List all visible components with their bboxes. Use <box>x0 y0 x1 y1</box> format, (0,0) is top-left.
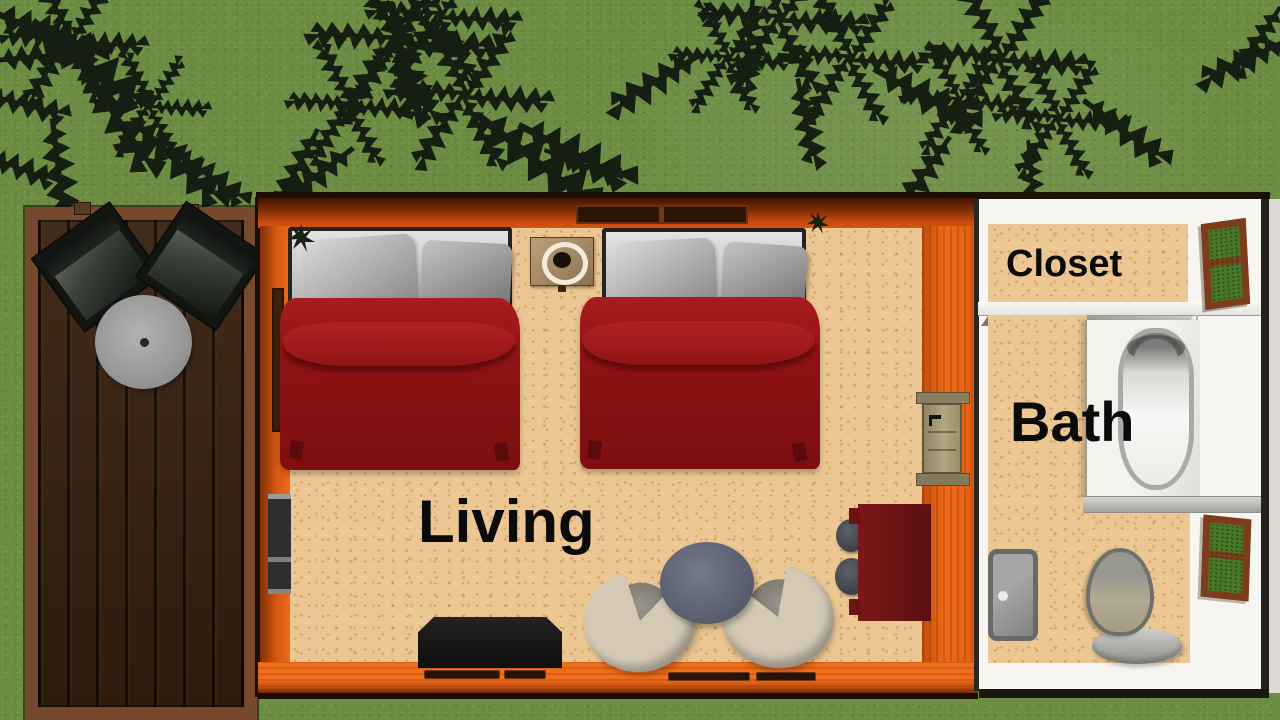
bottom-wall-window <box>424 670 500 679</box>
blanket <box>280 298 520 470</box>
annex-left-outline <box>974 199 979 691</box>
bath-room-label: Bath <box>1010 394 1134 450</box>
desk <box>858 504 931 621</box>
closet-window <box>1201 218 1250 310</box>
annex-right-wall-edge <box>1269 199 1280 693</box>
lamp-top <box>553 252 571 268</box>
door-frame-bottom <box>916 473 970 486</box>
sink <box>988 549 1038 641</box>
bed-right <box>578 227 820 487</box>
living-room-label: Living <box>418 492 595 552</box>
nightstand <box>530 237 594 286</box>
patio-table <box>95 295 192 389</box>
plant-sprig <box>806 210 830 234</box>
toilet-seat <box>1086 548 1154 636</box>
bath-window <box>1201 515 1252 602</box>
bed-post <box>587 440 602 460</box>
top-wall-window <box>576 205 748 224</box>
bed-left <box>280 227 522 487</box>
deck-post <box>74 202 91 215</box>
door-frame-top <box>916 392 970 404</box>
bottom-wall-window <box>504 670 546 679</box>
annex-bottom-outline <box>979 689 1269 698</box>
blanket-fold <box>283 322 515 366</box>
tv-console <box>418 617 562 668</box>
floor-plan-scene: Living Closet Bath <box>0 0 1280 720</box>
bed-post <box>289 440 304 460</box>
annex-right-outline <box>1261 199 1269 693</box>
coffee-table <box>660 542 754 624</box>
door-handle <box>929 415 941 419</box>
plant-sprig <box>286 222 316 252</box>
bath-door <box>922 403 962 474</box>
vanity-counter <box>1083 496 1268 513</box>
closet-room-label: Closet <box>1006 245 1122 283</box>
blanket-fold <box>583 321 815 365</box>
wood-stove <box>268 494 291 594</box>
bottom-wall-window <box>668 672 750 681</box>
bottom-wall-window <box>756 672 816 681</box>
door-panel-line <box>928 431 956 433</box>
blanket <box>580 297 820 469</box>
